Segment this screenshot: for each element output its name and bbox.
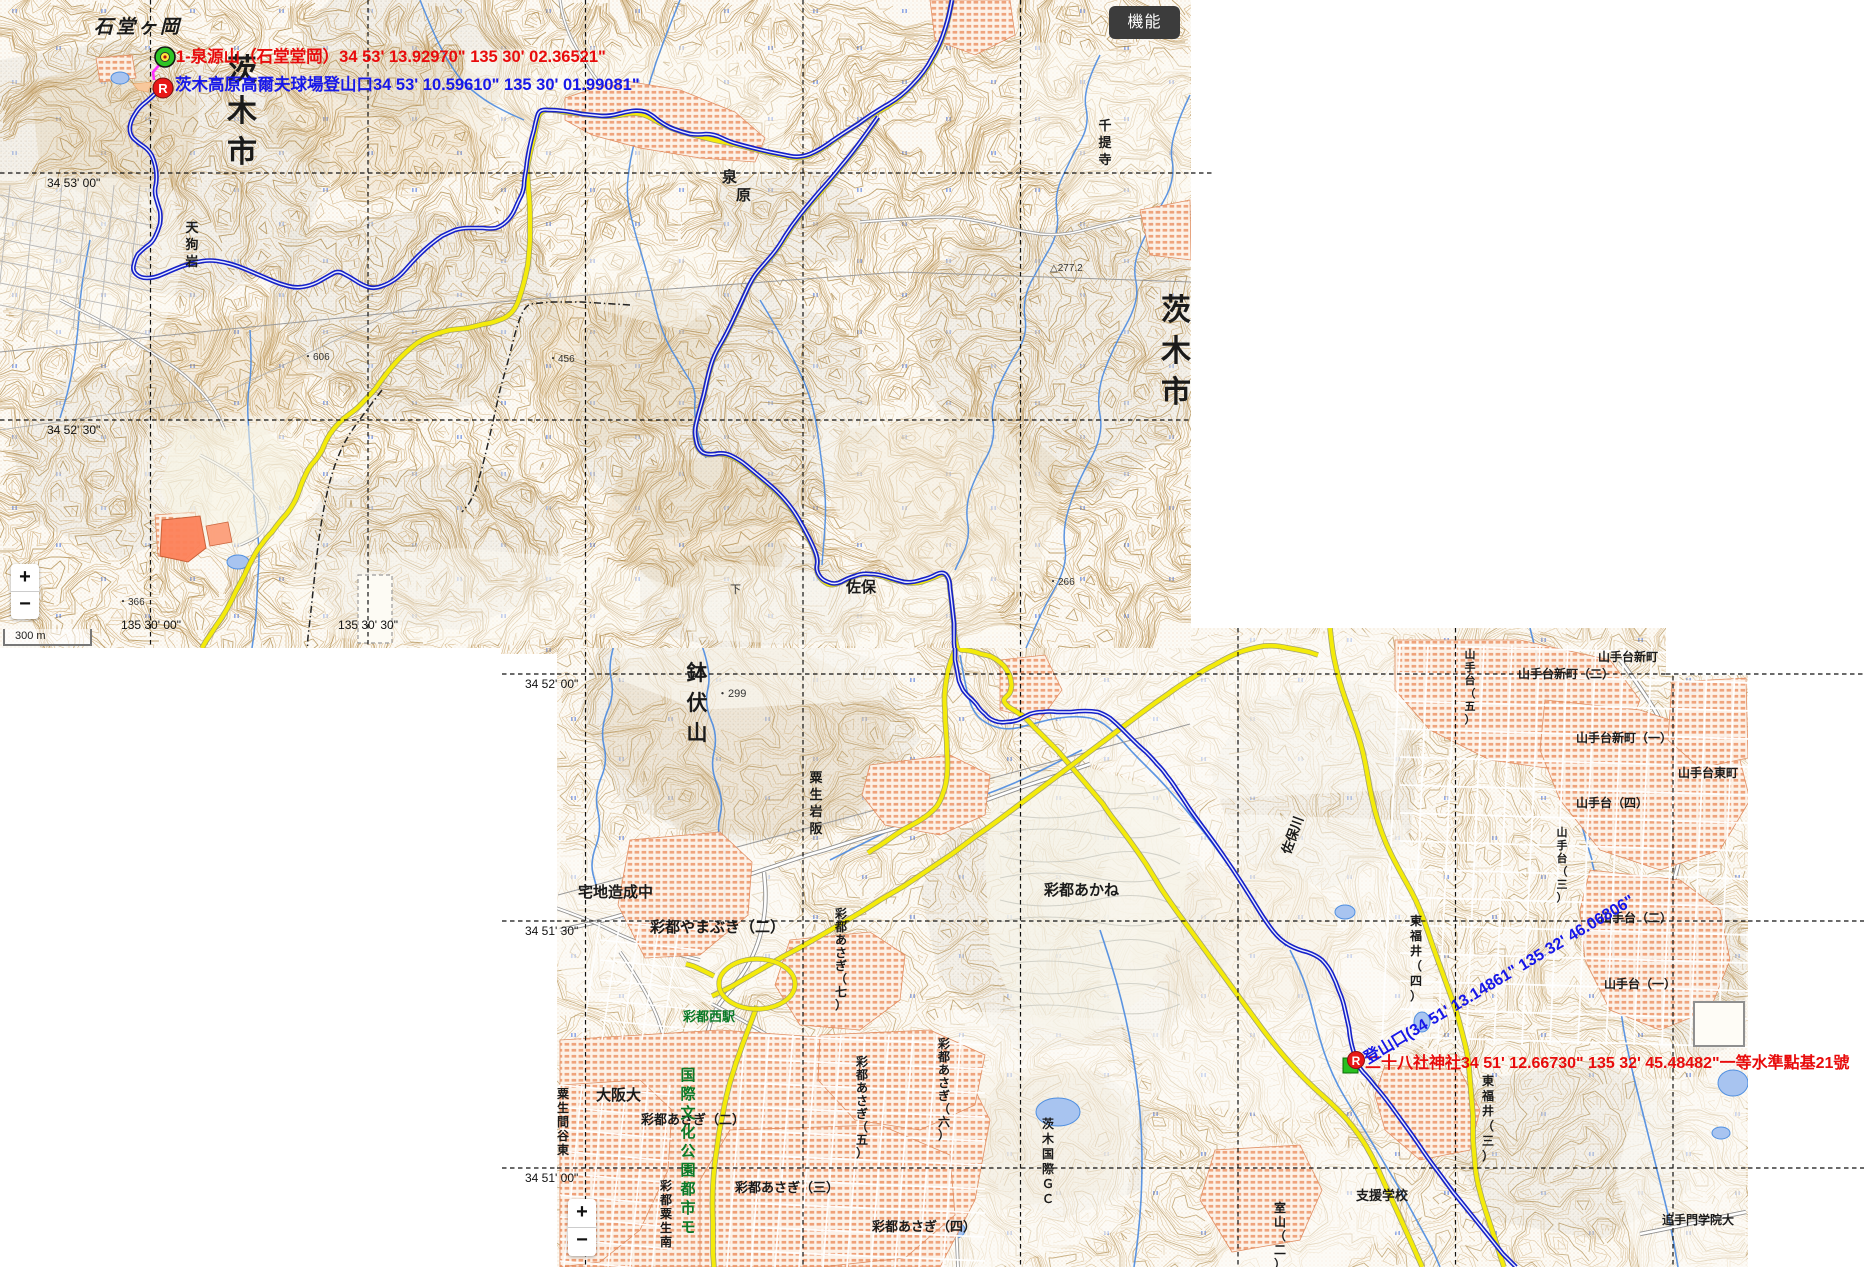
svg-text:二十八社神社34 51' 12.66730" 135 32': 二十八社神社34 51' 12.66730" 135 32' 45.48482"… xyxy=(1365,1053,1849,1072)
svg-text:34 51' 00": 34 51' 00" xyxy=(525,1171,578,1185)
svg-text:R: R xyxy=(1352,1054,1361,1068)
svg-text:34 52' 00": 34 52' 00" xyxy=(525,677,578,691)
svg-text:34 51' 30": 34 51' 30" xyxy=(525,924,578,938)
svg-text:登山口(34 51' 13.14861" 135 32' 4: 登山口(34 51' 13.14861" 135 32' 46.06806" xyxy=(1359,890,1637,1067)
